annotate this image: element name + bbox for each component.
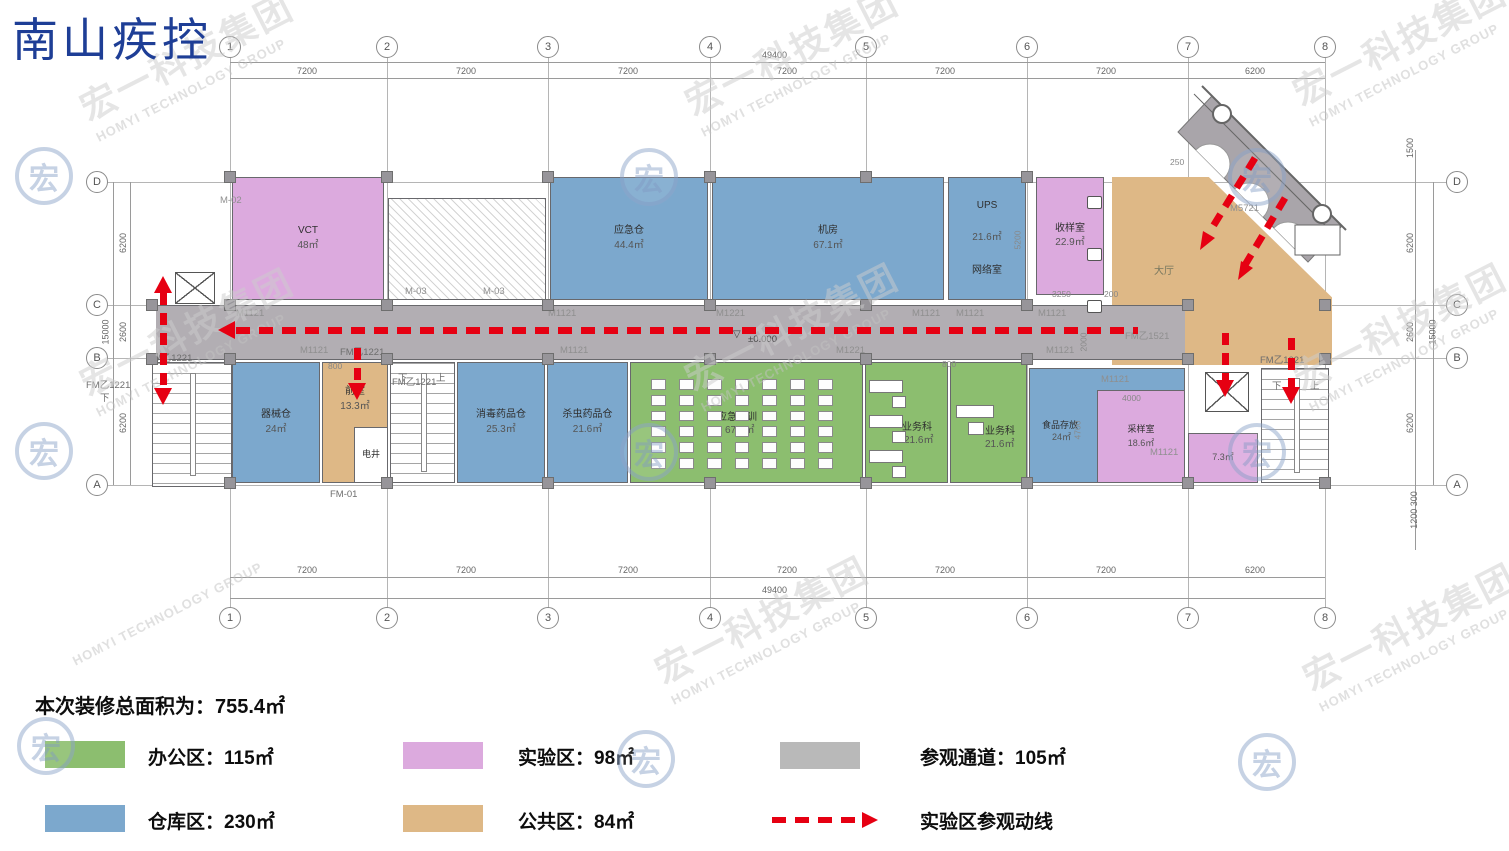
floor-plan-page: 南山疾控 1 2 3 4 5 6 7 8 1 2 3 4 5 6 7 8 D C… xyxy=(0,0,1509,851)
room-area: 67.1㎡ xyxy=(813,239,842,254)
door-label: FM-01 xyxy=(330,489,357,500)
room-name: 应急仓 xyxy=(614,224,644,239)
structural-column xyxy=(860,477,872,489)
structural-column xyxy=(542,171,554,183)
structural-column xyxy=(1182,299,1194,311)
stair-rail xyxy=(190,373,196,476)
dim-text: 7200 xyxy=(1096,66,1116,76)
door-label: FM乙1021 xyxy=(1260,352,1304,366)
room-name: 大厅 xyxy=(1154,265,1174,280)
watermark-subtext: HOMYI TECHNOLOGY GROUP xyxy=(1307,10,1509,130)
desk xyxy=(869,380,903,393)
door-label: M-02 xyxy=(220,195,242,206)
interior-dim: 800 xyxy=(328,361,342,371)
room-vct: VCT 48㎡ xyxy=(232,177,384,300)
route-arrowhead-down xyxy=(154,388,172,405)
route-lobby-vertical-1 xyxy=(1222,333,1229,381)
desk xyxy=(956,405,994,418)
homyi-logo-icon: 宏 xyxy=(1228,148,1286,206)
structural-column xyxy=(1021,299,1033,311)
room-area: 44.4㎡ xyxy=(614,239,643,254)
legend-label-route: 实验区参观动线 xyxy=(920,807,1053,834)
legend-swatch-public xyxy=(403,805,483,832)
route-arrowhead-down xyxy=(1282,387,1300,404)
structural-column xyxy=(1319,477,1331,489)
door-label: M1221 xyxy=(716,308,745,319)
door-label: M-03 xyxy=(405,286,427,297)
structural-column xyxy=(1021,353,1033,365)
interior-dim: 5200 xyxy=(1012,231,1022,250)
room-qixiecang: 器械仓 24㎡ xyxy=(232,362,320,483)
interior-dim: 4000 xyxy=(1122,393,1141,403)
dim-text: 7200 xyxy=(456,66,476,76)
door-label: M1121 xyxy=(1046,345,1074,356)
dim-text: 6200 xyxy=(118,233,128,253)
structural-column xyxy=(542,299,554,311)
room-area: 7.3㎡ xyxy=(1212,451,1234,464)
grid-row-marker: A xyxy=(1446,474,1468,496)
legend-route-arrowhead xyxy=(862,812,878,828)
structural-column xyxy=(381,299,393,311)
pass-box xyxy=(1087,248,1102,261)
room-name: 网络室 xyxy=(972,264,1002,279)
door-label: FM乙1221 xyxy=(86,377,130,391)
route-qianshi-vertical xyxy=(354,348,361,384)
grid-col-marker: 2 xyxy=(376,36,398,58)
dim-line xyxy=(113,182,114,485)
door-label: M1121 xyxy=(560,345,588,356)
route-arrowhead-up xyxy=(154,276,172,293)
grid-col-marker: 1 xyxy=(219,36,241,58)
door-label: FM乙1221 xyxy=(340,344,384,358)
page-title: 南山疾控 xyxy=(12,4,212,70)
door-label: M1121 xyxy=(236,308,264,319)
structural-column xyxy=(860,353,872,365)
grid-col-marker: 3 xyxy=(537,36,559,58)
watermark-subtext: HOMYI TECHNOLOGY GROUP xyxy=(1317,595,1509,715)
room-mech xyxy=(388,198,546,300)
pass-box xyxy=(1087,196,1102,209)
room-name: UPS xyxy=(977,199,998,214)
interior-dim: 200 xyxy=(1104,289,1118,299)
structural-column xyxy=(542,353,554,365)
dim-line xyxy=(230,598,1325,599)
dim-text: 7200 xyxy=(935,565,955,575)
dim-text: 7200 xyxy=(297,66,317,76)
dim-text: 7200 xyxy=(618,565,638,575)
legend-label-public: 公共区：84㎡ xyxy=(518,807,634,834)
interior-dim: 3250 xyxy=(1052,289,1071,299)
grid-col-marker: 5 xyxy=(855,607,877,629)
grid-col-marker: 6 xyxy=(1016,607,1038,629)
structural-column xyxy=(381,477,393,489)
dim-text: 6200 xyxy=(1245,565,1265,575)
grid-row-marker: B xyxy=(86,347,108,369)
dim-line xyxy=(230,577,1325,578)
dim-line xyxy=(1415,150,1416,550)
dim-text: 7200 xyxy=(1096,565,1116,575)
grid-col-marker: 7 xyxy=(1177,36,1199,58)
desk xyxy=(892,431,906,443)
room-area: 21.6㎡ xyxy=(573,423,602,438)
room-name: 杀虫药品仓 xyxy=(563,408,613,423)
dim-text: 15000 xyxy=(1428,319,1438,344)
dim-text: 6200 xyxy=(1405,413,1415,433)
homyi-logo-icon: 宏 xyxy=(15,422,73,480)
stair-up-label: 上 xyxy=(1310,378,1320,392)
door-label: M1121 xyxy=(1101,374,1129,385)
pass-box xyxy=(1087,300,1102,313)
interior-dim: 800 xyxy=(942,359,956,369)
dim-text: 15000 xyxy=(101,319,111,344)
room-area: 21.6㎡ xyxy=(972,231,1001,246)
structural-column xyxy=(704,171,716,183)
grid-col-marker: 4 xyxy=(699,36,721,58)
room-name: 收样室 xyxy=(1055,222,1085,237)
dim-text: 1200 300 xyxy=(1409,491,1419,529)
grid-row-marker: D xyxy=(1446,171,1468,193)
structural-column xyxy=(1182,353,1194,365)
room-name: 电井 xyxy=(362,448,380,461)
room-area: 25.3㎡ xyxy=(486,423,515,438)
grid-col-marker: 1 xyxy=(219,607,241,629)
dim-text: 6200 xyxy=(118,413,128,433)
legend-swatch-lab xyxy=(403,742,483,769)
structural-column xyxy=(381,171,393,183)
room-area: 48㎡ xyxy=(297,239,318,254)
door-label: M1121 xyxy=(1038,308,1066,319)
structural-column xyxy=(1319,299,1331,311)
structural-column xyxy=(1319,353,1331,365)
grid-col-marker: 3 xyxy=(537,607,559,629)
training-tables xyxy=(651,379,833,469)
dim-text: 7200 xyxy=(618,66,638,76)
route-arrowhead-down xyxy=(1216,380,1234,397)
dim-line xyxy=(130,182,131,485)
door-label: M1121 xyxy=(956,308,984,319)
room-small-lab: 7.3㎡ xyxy=(1188,433,1258,483)
grid-row-marker: D xyxy=(86,171,108,193)
room-area: 24㎡ xyxy=(1052,431,1071,444)
desk xyxy=(869,415,903,428)
legend-label-warehouse: 仓库区：230㎡ xyxy=(148,807,275,834)
grid-col-marker: 6 xyxy=(1016,36,1038,58)
legend-route-line xyxy=(772,817,864,823)
grid-col-marker: 2 xyxy=(376,607,398,629)
legend-label-office: 办公区：115㎡ xyxy=(148,743,274,770)
desk xyxy=(892,396,906,408)
structural-column xyxy=(224,171,236,183)
watermark-subtext: HOMYI TECHNOLOGY GROUP xyxy=(669,588,884,708)
grid-row-marker: A xyxy=(86,474,108,496)
structural-column xyxy=(860,299,872,311)
homyi-logo-icon: 宏 xyxy=(15,147,73,205)
room-name: 器械仓 xyxy=(261,408,291,423)
structural-column xyxy=(1021,477,1033,489)
grid-row-marker: C xyxy=(1446,294,1468,316)
room-name: VCT xyxy=(298,224,318,239)
room-area: 22.9㎡ xyxy=(1055,236,1084,251)
interior-dim: 4700 xyxy=(1072,421,1082,440)
structural-column xyxy=(224,477,236,489)
legend-swatch-warehouse xyxy=(45,805,125,832)
legend-swatch-office xyxy=(45,741,125,768)
room-name: 消毒药品仓 xyxy=(476,408,526,423)
room-jifang: 机房 67.1㎡ xyxy=(712,177,944,300)
room-xiaodu: 消毒药品仓 25.3㎡ xyxy=(457,362,545,483)
stair-down-label: 下 xyxy=(1272,378,1282,392)
structural-column xyxy=(381,353,393,365)
room-name: 采样室 xyxy=(1127,423,1154,436)
structural-column xyxy=(542,477,554,489)
room-shachong: 杀虫药品仓 21.6㎡ xyxy=(547,362,628,483)
watermark: 宏一科技集团HOMYI TECHNOLOGY GROUP 宏 xyxy=(1228,70,1509,137)
route-main-line xyxy=(236,327,1138,334)
grid-col-marker: 8 xyxy=(1314,36,1336,58)
grid-row-marker: C xyxy=(86,294,108,316)
structural-column xyxy=(704,299,716,311)
room-yingjicang: 应急仓 44.4㎡ xyxy=(550,177,708,300)
grid-line xyxy=(105,485,1448,486)
legend-label-lab: 实验区：98㎡ xyxy=(518,743,634,770)
dim-text: 6200 xyxy=(1245,66,1265,76)
interior-dim: 2000 xyxy=(1078,333,1088,352)
door-label: M1121 xyxy=(300,345,328,356)
dim-line xyxy=(230,62,1325,63)
structural-column xyxy=(704,353,716,365)
room-area: 21.6㎡ xyxy=(904,434,933,449)
dim-text: 7200 xyxy=(456,565,476,575)
structural-column xyxy=(1021,171,1033,183)
room-area: 21.6㎡ xyxy=(985,438,1014,453)
dim-text: 7200 xyxy=(935,66,955,76)
watermark: HOMYI TECHNOLOGY GROUP 宏 xyxy=(15,655,281,670)
dim-line xyxy=(230,78,1325,79)
interior-dim: 250 xyxy=(1170,157,1184,167)
route-lobby-vertical-2 xyxy=(1288,338,1295,388)
legend-label-corridor: 参观通道：105㎡ xyxy=(920,743,1066,770)
route-left-vertical xyxy=(160,293,167,387)
door-label: M1121 xyxy=(912,308,940,319)
dim-text: 49400 xyxy=(762,585,787,595)
watermark: 宏一科技集团HOMYI TECHNOLOGY GROUP 宏 xyxy=(15,85,304,152)
watermark: 宏一科技集团HOMYI TECHNOLOGY GROUP 宏 xyxy=(615,648,879,715)
renovation-total-label: 本次装修总面积为：755.4㎡ xyxy=(35,690,285,719)
room-area: 24㎡ xyxy=(265,423,286,438)
dim-text: 7200 xyxy=(777,66,797,76)
room-yewuke-2: 业务科 21.6㎡ xyxy=(950,362,1027,483)
structural-column xyxy=(860,171,872,183)
grid-col-marker: 4 xyxy=(699,607,721,629)
door-label: M-03 xyxy=(483,286,505,297)
watermark-text: 宏一科技集团 xyxy=(645,542,877,695)
door-label: M5721 xyxy=(1230,203,1259,214)
structural-column xyxy=(146,353,158,365)
watermark-subtext: HOMYI TECHNOLOGY GROUP xyxy=(1307,295,1509,415)
watermark-subtext: HOMYI TECHNOLOGY GROUP xyxy=(699,20,914,140)
room-name: 机房 xyxy=(818,224,838,239)
dim-text: 2600 xyxy=(1405,322,1415,342)
stair-down-label: 下 xyxy=(100,390,110,404)
grid-col-marker: 8 xyxy=(1314,607,1336,629)
dim-text: 1500 xyxy=(1405,138,1415,158)
desk xyxy=(968,422,984,435)
grid-col-marker: 5 xyxy=(855,36,877,58)
desk xyxy=(892,466,906,478)
structural-column xyxy=(704,477,716,489)
door-label: M1121 xyxy=(1150,447,1178,458)
dim-text: 7200 xyxy=(777,565,797,575)
grid-col-marker: 7 xyxy=(1177,607,1199,629)
route-arrowhead-down xyxy=(348,383,366,400)
grid-row-marker: B xyxy=(1446,347,1468,369)
route-arrowhead-left xyxy=(218,321,235,339)
watermark: 宏一科技集团HOMYI TECHNOLOGY GROUP 宏 xyxy=(1238,655,1509,722)
desk xyxy=(869,450,903,463)
structural-column xyxy=(224,353,236,365)
structural-column xyxy=(224,299,236,311)
stair-up-label: 上 xyxy=(436,370,446,384)
homyi-logo-icon: 宏 xyxy=(1238,733,1296,791)
structural-column xyxy=(1182,477,1194,489)
room-peixun: 应急培训 67.1㎡ xyxy=(630,362,863,483)
legend-swatch-corridor xyxy=(780,742,860,769)
room-caiyang: 采样室 18.6㎡ xyxy=(1097,390,1185,483)
dim-text: 7200 xyxy=(297,565,317,575)
room-shouyangshi: 收样室 22.9㎡ xyxy=(1036,177,1104,295)
dim-text: 6200 xyxy=(1405,233,1415,253)
dim-text: 49400 xyxy=(762,50,787,60)
stair-down-label: 下 xyxy=(398,370,408,384)
structural-column xyxy=(146,299,158,311)
elevator xyxy=(175,272,215,304)
watermark-text: 宏一科技集团 xyxy=(1283,0,1509,116)
level-mark: ±0.000 xyxy=(748,334,777,345)
dim-text: 2600 xyxy=(118,322,128,342)
watermark: 宏一科技集团HOMYI TECHNOLOGY GROUP 宏 xyxy=(615,80,909,147)
room-area: 13.3㎡ xyxy=(340,400,369,415)
room-dianjing: 电井 xyxy=(354,427,388,483)
